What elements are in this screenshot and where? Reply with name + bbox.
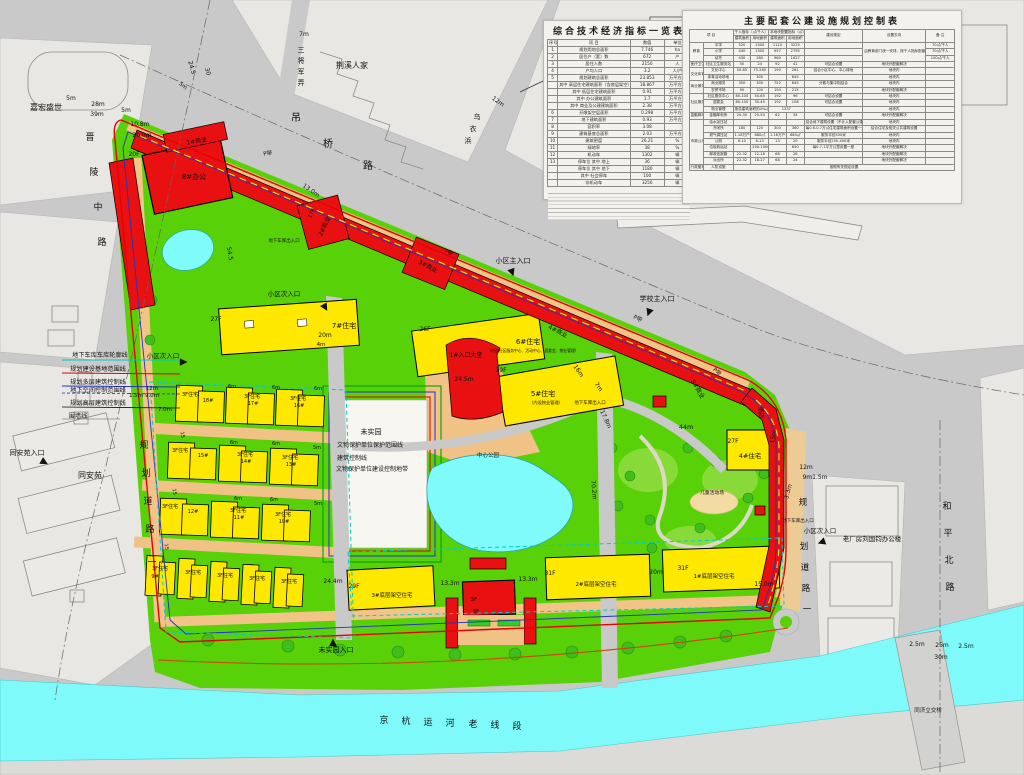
map-label: 段 — [512, 720, 521, 732]
map-label: 规划多层建筑控制线 — [70, 378, 126, 386]
right-facility-table-panel: 主要配套公建设施规划控制表 项 目千人指标（㎡/千人）本地块配置指标（㎡）建设规… — [682, 10, 962, 204]
map-label: 吊 — [291, 112, 301, 124]
map-label: 小区次入口 — [147, 351, 180, 360]
table-cell: 2.38 — [630, 103, 664, 110]
map-label: 6#住宅 — [516, 337, 540, 346]
table-cell: 设置去向 — [863, 30, 926, 43]
map-label: 划 — [800, 541, 809, 552]
table-cell: 开敞架空层面积 — [558, 110, 631, 117]
map-label: 20F — [128, 151, 140, 158]
table-cell: 由教育部门统一安排，按千人指标配套解决 — [863, 42, 926, 61]
map-label: 老厂房刘国钧办公楼 — [843, 534, 902, 543]
map-label: 将 — [298, 56, 305, 65]
map-label: 5m — [66, 95, 76, 102]
left-table-title: 综合技术经济指标一览表 — [544, 24, 694, 37]
map-label: 6m — [228, 384, 236, 390]
table-cell: 0.93 — [630, 117, 664, 124]
table-cell: 6 — [548, 110, 558, 117]
map-label: 建筑控制线 — [337, 454, 367, 462]
left-indicator-table-panel: 综合技术经济指标一览表 序号项 目数值单位1规划用地总面积7.746ha2居住户… — [543, 20, 695, 200]
map-label: 18# — [203, 398, 214, 404]
map-label: 1.5m — [129, 393, 143, 399]
table-cell: 8 — [548, 124, 558, 131]
table-cell: 规划用地总面积 — [558, 47, 631, 54]
south-complex-bar — [470, 558, 506, 569]
table-cell: 机动车 — [558, 152, 631, 159]
map-label: 26F — [419, 326, 431, 333]
map-label: 同安苑入口 — [10, 448, 45, 457]
table-cell: 10 — [548, 138, 558, 145]
map-label: 2#底层架空住宅 — [575, 580, 617, 588]
table-cell — [548, 166, 558, 173]
table-cell: 建筑面积 — [733, 36, 751, 42]
map-label: 3F住宅 — [162, 503, 178, 510]
map-label: 道 — [143, 495, 152, 507]
map-label: 39m — [90, 111, 104, 118]
table-cell: 4 — [548, 68, 558, 75]
table-cell: 36 — [630, 159, 664, 166]
map-label: 28m — [91, 101, 105, 108]
map-label: 衣 — [470, 124, 477, 133]
map-label: 31F — [677, 565, 689, 572]
table-cell: 1302 — [630, 152, 664, 159]
table-cell: 社区服务 — [689, 94, 704, 113]
map-label: 13.3m — [440, 580, 459, 587]
map-label: 军 — [298, 68, 305, 76]
table-cell: 其中 社会停车 — [558, 173, 631, 180]
table-cell: 项 目 — [558, 40, 631, 47]
map-label: 3F住宅 — [185, 569, 201, 576]
table-cell: 序号 — [548, 40, 558, 47]
table-cell: 数值 — [630, 40, 664, 47]
table-cell: 5 — [548, 75, 558, 82]
table-cell: 其中 商业及公建建筑面积 — [558, 103, 631, 110]
map-label: 12m — [146, 386, 158, 392]
map-label: 和 — [942, 501, 951, 512]
map-label: 17# — [248, 401, 259, 407]
table-cell: 每0.7-1平方公里设置一座 — [804, 145, 863, 151]
table-cell: 3 — [548, 61, 558, 68]
map-label: 14# — [241, 459, 252, 465]
map-label: 20m — [649, 569, 663, 576]
table-cell: 23.853 — [630, 75, 664, 82]
map-label: 3F住宅 — [275, 511, 291, 518]
table-cell: 80-100 — [733, 100, 751, 106]
map-label: 15 — [170, 488, 177, 495]
table-cell: 每0.6-0.7万㎡住宅建筑面积设置一处 — [804, 126, 863, 132]
map-label: 3F住宅 — [237, 451, 253, 458]
map-label: 同安苑 — [78, 470, 102, 480]
map-label: 3#底层架空住宅 — [371, 591, 413, 599]
table-cell: 社区服务中心 — [704, 94, 733, 100]
map-label: 未实园 — [361, 427, 382, 436]
map-label: 9.0m — [145, 393, 159, 399]
map-label: 平 — [943, 528, 952, 539]
table-cell: 绿地率 — [558, 145, 631, 152]
table-cell: 75-280 — [751, 68, 769, 74]
map-label: 道 — [801, 562, 810, 573]
map-label: 11# — [234, 515, 245, 521]
map-label: 运 — [423, 717, 432, 728]
map-label: 3F住宅 — [244, 393, 260, 400]
kiosk-1 — [653, 396, 666, 407]
map-label: 北 — [944, 555, 953, 566]
map-label: 河 — [445, 717, 454, 729]
table-cell: 项 目 — [689, 30, 733, 43]
map-label: 地下车库出入口 — [782, 517, 814, 524]
map-label: 小区主入口 — [496, 256, 531, 265]
map-label: 1#入口大堂 — [450, 351, 483, 359]
table-cell: 社区卫生服务站 — [704, 62, 733, 68]
courtyard-label-chip — [468, 620, 490, 626]
table-notes-lines — [548, 190, 690, 220]
map-label: 一 — [803, 605, 812, 615]
table-cell: 2.03 — [630, 131, 664, 138]
map-label: 未实园入口 — [319, 645, 354, 654]
table-cell: 居住人数 — [558, 61, 631, 68]
map-label: 3F住宅 — [172, 447, 188, 454]
table-cell: 1.18万户1处 — [733, 132, 751, 138]
map-label: 晋 — [85, 132, 94, 143]
map-label: 规划高层建筑控制线 — [70, 399, 126, 407]
table-cell: 0.91 — [630, 89, 664, 96]
right-table-title: 主要配套公建设施规划控制表 — [683, 14, 961, 27]
map-label: 地下车库车库轮廓线 — [72, 351, 128, 359]
map-label: 7.0m — [158, 407, 172, 413]
table-cell: 医疗卫生 — [689, 62, 704, 68]
map-label: 乌 — [474, 112, 481, 121]
map-label: 6m — [230, 440, 238, 446]
map-label: 13.3m — [518, 576, 537, 583]
table-cell: 80-100 — [733, 94, 751, 100]
map-label: 6m — [272, 385, 280, 391]
table-cell — [548, 180, 558, 187]
map-label: 15 — [178, 431, 185, 438]
map-label: 3F住宅 — [152, 565, 168, 572]
kiosk-2 — [755, 506, 765, 515]
table-cell: 26.21 — [630, 138, 664, 145]
table-cell: 人防设施 — [704, 164, 733, 170]
map-label: 6m — [234, 496, 242, 502]
map-label: 3F — [471, 597, 478, 603]
table-cell — [548, 96, 558, 103]
table-cell: 2150 — [630, 61, 664, 68]
table-cell: 行政管理及其它 — [689, 164, 704, 170]
map-label: 4#住宅 — [739, 451, 762, 460]
table-cell: 商业服务 — [689, 81, 704, 94]
map-label: 44m — [679, 423, 694, 431]
map-label: 3F住宅 — [182, 391, 198, 398]
table-cell: 停车位 其中 地上 — [558, 159, 631, 166]
table-cell — [548, 89, 558, 96]
table-cell: 教育 — [689, 42, 704, 61]
table-cell: 11 — [548, 145, 558, 152]
map-label: 路 — [802, 583, 811, 594]
map-label: 文物保护单位保护范围线 — [337, 441, 403, 449]
map-label: 路 — [145, 523, 154, 535]
map-label: 5#住宅 — [531, 389, 555, 398]
map-label: 二 — [147, 555, 156, 565]
map-label: 24.4m — [323, 578, 342, 585]
table-cell: 1.7 — [630, 96, 664, 103]
factory-building-outline — [826, 486, 898, 536]
map-label: 三 — [298, 46, 305, 54]
table-cell: 100 — [630, 173, 664, 180]
map-label: 6m — [272, 441, 280, 447]
table-cell: 非机动车 — [558, 180, 631, 187]
table-cell: 建设规定 — [804, 30, 863, 43]
map-label: 27F — [210, 316, 222, 323]
table-cell: 7.746 — [630, 47, 664, 54]
table-cell: 体育活动场地 — [704, 74, 733, 80]
map-label: 9# — [151, 574, 158, 580]
map-label: 儿童活动场 — [700, 489, 724, 496]
map-label: 文物保护单位建设控制地带 — [336, 465, 408, 473]
table-cell: 建筑面积 — [769, 36, 787, 42]
public-facility-table: 项 目千人指标（㎡/千人）本地块配置指标（㎡）建设规定设置去向备 注建筑面积用地… — [689, 29, 956, 171]
table-cell — [548, 103, 558, 110]
table-cell — [548, 173, 558, 180]
map-label: 3F住宅 — [281, 578, 297, 585]
map-label: 27F — [727, 438, 739, 445]
map-label: 路 — [945, 581, 954, 593]
south-complex-east-wing — [524, 598, 536, 644]
table-cell: 规划建筑总面积 — [558, 75, 631, 82]
table-cell: 其中 高层住宅建筑面积（含底层架空） — [558, 82, 631, 89]
site-plan-page: 建筑阴影控制线嘉宏盛世荆溪人家三将军弄7m晋陵中路吊桥路乌衣浜12m田家炳实验中… — [0, 0, 1024, 775]
map-label: 京 — [379, 714, 388, 726]
map-label: 3F住宅 — [249, 575, 265, 582]
map-label: 陵 — [89, 167, 98, 178]
map-label: 浜 — [465, 136, 472, 145]
table-cell: 18.867 — [630, 82, 664, 89]
jiahong-shengshi-label: 嘉宏盛世 — [30, 102, 62, 112]
map-label: 4m — [317, 342, 326, 348]
map-label: 25m — [935, 642, 949, 649]
map-label: 13# — [286, 462, 297, 468]
map-label: 小区次入口 — [268, 289, 301, 298]
map-label: 学校主入口 — [640, 294, 675, 303]
map-label: 老 — [468, 718, 477, 730]
table-cell: 38 — [630, 145, 664, 152]
map-label: 围墙线 — [69, 412, 88, 420]
table-cell: 其中 办公建筑面积 — [558, 96, 631, 103]
map-label: 划 — [141, 467, 150, 479]
table-cell: 市政公用 — [689, 119, 704, 164]
map-label: 9m1.5m — [802, 474, 827, 481]
map-label: 7#住宅 — [332, 321, 356, 330]
table-cell: 3256 — [630, 180, 664, 187]
map-label: 12m — [799, 464, 813, 471]
map-label: （内设社区服务中心、活动中心、居委会、物业管理） — [487, 348, 578, 353]
table-cell: 7 — [548, 117, 558, 124]
table-cell: 文化体育 — [689, 68, 704, 81]
map-label: 7m — [299, 31, 309, 38]
map-label: 20.0m — [132, 132, 151, 139]
table-cell: 9 — [548, 131, 558, 138]
table-cell — [548, 82, 558, 89]
map-label: 线 — [490, 719, 499, 731]
table-cell: 户均人口 — [558, 68, 631, 75]
jingxi-renjia-label: 荆溪人家 — [336, 60, 368, 70]
map-label: 规 — [139, 440, 148, 451]
map-label: 地下空间控制范围线 — [70, 386, 126, 394]
table-cell: 0.298 — [630, 110, 664, 117]
map-label: 29F — [495, 367, 507, 374]
map-label: 6m — [314, 386, 322, 392]
map-label: 弄 — [298, 79, 305, 87]
table-cell: 672 — [630, 54, 664, 61]
table-cell: 建筑基底总面积 — [558, 131, 631, 138]
map-label: 10# — [279, 519, 290, 525]
map-label: 2.5m — [909, 641, 925, 648]
map-label: 杭 — [401, 715, 410, 727]
table-cell: 12 — [548, 152, 558, 159]
table-cell: 地下建筑面积 — [558, 117, 631, 124]
map-label: 10.8m — [130, 121, 149, 128]
map-label: 3F — [473, 609, 480, 615]
map-label: 5m — [121, 107, 131, 114]
tower-4 — [727, 430, 773, 470]
map-label: 规 — [799, 497, 808, 508]
table-cell: 1.18万户1处 — [769, 132, 787, 138]
table-cell: 按照有关规定设置 — [733, 164, 955, 170]
map-label: 8#办公 — [182, 172, 206, 181]
map-label: 20m — [318, 332, 332, 339]
map-label: 30m — [934, 654, 948, 661]
map-label: 15.0m — [754, 581, 773, 588]
table-cell: 其中 低层住宅建筑面积 — [558, 89, 631, 96]
table-cell: 结合地下建筑设置（不计入配套公建），可按居住人口规模预留设置 — [804, 119, 863, 125]
economic-indicator-table: 序号项 目数值单位1规划用地总面积7.746ha2居住户（套）数672户3居住人… — [547, 39, 691, 187]
table-cell: 金融邮电 — [689, 113, 704, 119]
map-label: 地下车库出入口 — [574, 399, 606, 406]
map-label: （内设物业管理） — [529, 399, 563, 406]
table-cell: 3.2 — [630, 68, 664, 75]
map-label: 路 — [363, 159, 373, 172]
table-cell: 用地面积 — [786, 36, 804, 42]
map-label: 16# — [294, 403, 305, 409]
map-label: 6m — [270, 497, 278, 503]
map-label: 3F住宅 — [290, 395, 306, 402]
table-cell: 结合住宅及相关公共建筑设置 — [863, 126, 926, 132]
table-cell: 200-1000 — [751, 145, 769, 151]
map-label: 路 — [97, 236, 106, 248]
table-cell: 停车位 其中 地下 — [558, 166, 631, 173]
map-label: 5m — [313, 445, 321, 451]
map-label: 31F — [544, 570, 556, 577]
table-cell: 千人指标（㎡/千人） — [733, 30, 769, 36]
table-cell: 建筑密度 — [558, 138, 631, 145]
map-label: 3F住宅 — [217, 572, 233, 579]
map-label: 同济立交桥 — [914, 706, 942, 714]
table-cell: 2 — [548, 54, 558, 61]
map-label: 29F — [348, 583, 360, 590]
map-label: 地下车库出入口 — [268, 237, 300, 244]
table-cell: 居住户（套）数 — [558, 54, 631, 61]
table-cell: 本地块配置指标（㎡） — [769, 30, 805, 36]
map-label: 15 — [162, 543, 169, 550]
map-label: 中心公园 — [477, 451, 500, 459]
map-label: 3F住宅 — [230, 507, 246, 514]
map-label: 3F住宅 — [282, 454, 298, 461]
map-label: 2.5m — [958, 643, 974, 650]
map-label: 12# — [188, 509, 199, 515]
map-label: 规划建设基地范围线 — [70, 365, 126, 373]
table-cell: 容积率 — [558, 124, 631, 131]
map-label: 中 — [93, 201, 102, 213]
table-cell: 1180 — [630, 166, 664, 173]
table-cell: 用地面积 — [751, 36, 769, 42]
table-cell: 1 — [548, 47, 558, 54]
table-cell: 按总建筑面积的4‰计 — [733, 106, 769, 112]
map-label: 小区次入口 — [804, 526, 837, 535]
table-cell: 备 注 — [926, 30, 955, 43]
map-label: 24.5m — [454, 376, 473, 383]
table-cell: 3.08 — [630, 124, 664, 131]
table-cell: 13 — [548, 159, 558, 166]
map-label: 1#底层架空住宅 — [693, 572, 735, 580]
map-label: 5m — [314, 501, 322, 507]
map-label: 桥 — [323, 138, 333, 150]
map-label: 15# — [198, 453, 209, 459]
